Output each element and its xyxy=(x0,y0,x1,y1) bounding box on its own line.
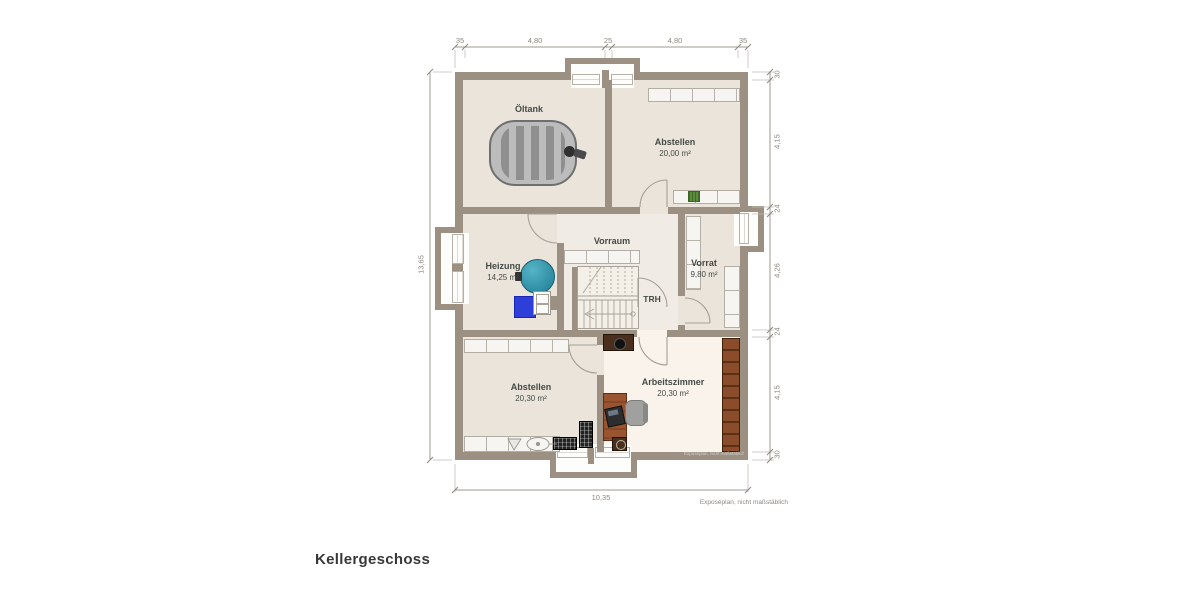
shelf-abstellen-top xyxy=(648,88,740,102)
room-label-heizung: Heizung 14,25 m² xyxy=(462,261,544,283)
room-name: TRH xyxy=(643,294,660,304)
room-label-trh: TRH xyxy=(630,294,674,305)
radiator-vertical xyxy=(579,421,593,448)
room-label-oeltank: Öltank xyxy=(489,104,569,116)
waste-bin-ring xyxy=(616,440,626,450)
window-left-upper xyxy=(452,234,464,264)
room-name: Heizung xyxy=(486,261,521,271)
waste-bin xyxy=(612,437,627,451)
page-title: Kellergeschoss xyxy=(315,551,430,568)
room-area: 14,25 m² xyxy=(462,273,544,283)
room-area: 20,30 m² xyxy=(611,389,735,399)
plan-caption: Exposéplan, nicht maßstäblich xyxy=(658,499,788,506)
room-name: Abstellen xyxy=(511,382,552,392)
office-chair-back xyxy=(643,403,648,423)
room-label-arbeitszimmer: Arbeitszimmer 20,30 m² xyxy=(611,377,735,399)
dim-right-7: 30 xyxy=(773,435,782,475)
dim-right-5: 24 xyxy=(773,312,782,352)
laptop-screen xyxy=(608,409,619,416)
room-name: Abstellen xyxy=(655,137,696,147)
wall-heizung-hall xyxy=(557,243,564,330)
wall-row1-left xyxy=(463,207,640,214)
door-opening-arbeitszimmer xyxy=(637,330,667,337)
room-label-vorraum: Vorraum xyxy=(572,236,652,248)
dim-top-3: 25 xyxy=(588,36,628,45)
floorplan-page: { "title": "Kellergeschoss", "footer_not… xyxy=(0,0,1200,600)
dim-right-1: 30 xyxy=(773,55,782,95)
window-bay-bottom-stub xyxy=(588,448,594,464)
door-opening-vorrat xyxy=(678,296,685,325)
laptop xyxy=(604,405,626,427)
door-opening-heizung xyxy=(557,214,564,243)
dim-bottom-1: 10,35 xyxy=(571,493,631,502)
door-opening-abstellen-top xyxy=(640,207,668,214)
counter-abstellen-bottom xyxy=(464,436,560,452)
wall-row1-right xyxy=(668,207,740,214)
dim-right-6: 4,15 xyxy=(773,373,782,413)
window-top-left xyxy=(572,74,600,85)
room-label-abstellen-top: Abstellen 20,00 m² xyxy=(633,137,717,159)
room-area: 9,80 m² xyxy=(663,270,745,280)
room-name: Arbeitszimmer xyxy=(642,377,705,387)
dim-top-5: 35 xyxy=(723,36,763,45)
fixture-stub xyxy=(551,296,557,310)
window-top-right xyxy=(611,74,633,85)
wall-oeltank-abstellen xyxy=(605,80,612,214)
room-area: 20,30 m² xyxy=(489,394,573,404)
room-name: Öltank xyxy=(515,104,543,114)
shelf-abstellen-bottom xyxy=(464,339,569,353)
wall-fixture xyxy=(533,291,551,315)
oil-tank-ribs xyxy=(501,126,565,180)
dim-top-4: 4,80 xyxy=(655,36,695,45)
hall-cabinet xyxy=(603,334,634,351)
room-area: 20,00 m² xyxy=(633,149,717,159)
dim-right-2: 4,15 xyxy=(773,122,782,162)
wall-hall-vorrat-upper xyxy=(678,214,685,296)
shelf-vorraum xyxy=(564,250,640,264)
dim-top-1: 35 xyxy=(440,36,480,45)
fixture-cell-2 xyxy=(536,304,549,314)
room-label-vorrat: Vorrat 9,80 m² xyxy=(663,258,745,280)
dim-right-4: 4,26 xyxy=(773,251,782,291)
room-name: Vorraum xyxy=(594,236,630,246)
dim-left-1: 13,65 xyxy=(417,245,426,285)
radiator-horizontal xyxy=(553,437,577,450)
shelf-abstellen-right xyxy=(673,190,740,204)
room-label-abstellen-bottom: Abstellen 20,30 m² xyxy=(489,382,573,404)
fixture-cell-1 xyxy=(536,294,549,304)
dim-right-3: 24 xyxy=(773,189,782,229)
dim-top-2: 4,80 xyxy=(515,36,555,45)
wall-row2-right xyxy=(667,330,740,337)
room-name: Vorrat xyxy=(691,258,717,268)
wall-watermark: Exposéplan, nicht maßstäblich xyxy=(684,451,744,459)
green-crate xyxy=(688,191,700,202)
cabinet-basin xyxy=(614,338,626,350)
window-right xyxy=(739,213,749,244)
